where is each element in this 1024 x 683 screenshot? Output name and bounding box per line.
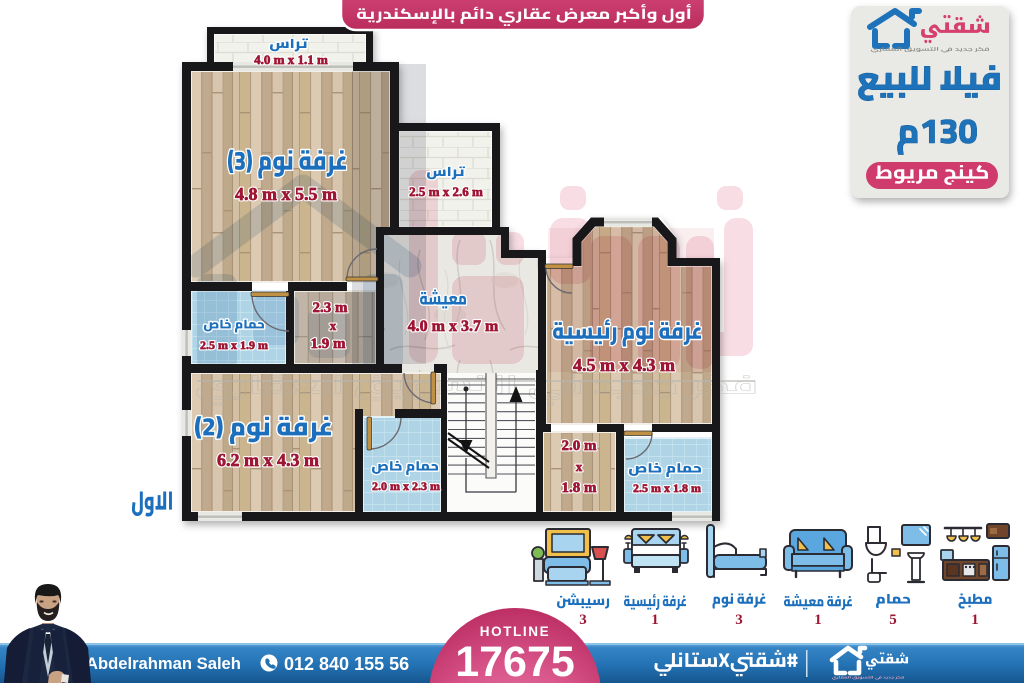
svg-text:1.9 m: 1.9 m: [311, 336, 347, 352]
svg-text:HOTLINE: HOTLINE: [480, 624, 550, 639]
svg-text:1: 1: [971, 612, 979, 628]
svg-text:2.5 m x 1.8 m: 2.5 m x 1.8 m: [633, 481, 701, 495]
svg-text:6.2 m x 4.3 m: 6.2 m x 4.3 m: [217, 450, 319, 470]
svg-text:17675: 17675: [455, 638, 575, 683]
svg-text:2.5 m x 1.9 m: 2.5 m x 1.9 m: [200, 338, 268, 352]
svg-text:3: 3: [579, 612, 587, 628]
svg-text:012 840 155 56: 012 840 155 56: [284, 654, 409, 674]
svg-text:5: 5: [889, 612, 897, 628]
svg-text:2.5 m x 2.6 m: 2.5 m x 2.6 m: [409, 184, 483, 199]
svg-text:Abdelrahman Saleh: Abdelrahman Saleh: [86, 654, 241, 673]
svg-text:4.8 m x 5.5 m: 4.8 m x 5.5 m: [235, 184, 337, 204]
svg-text:x: x: [330, 318, 337, 333]
svg-text:x: x: [576, 459, 583, 474]
svg-text:4.0 m x 1.1 m: 4.0 m x 1.1 m: [254, 52, 328, 67]
svg-text:1: 1: [814, 612, 822, 628]
svg-text:2.3 m: 2.3 m: [313, 300, 349, 316]
svg-text:4.5 m x 4.3 m: 4.5 m x 4.3 m: [573, 355, 675, 375]
svg-text:2.0 m x 2.3 m: 2.0 m x 2.3 m: [372, 479, 440, 493]
svg-text:1.8 m: 1.8 m: [562, 480, 598, 496]
svg-text:2.0 m: 2.0 m: [562, 438, 598, 454]
svg-text:3: 3: [735, 612, 743, 628]
svg-text:4.0 m x 3.7 m: 4.0 m x 3.7 m: [408, 318, 499, 335]
svg-text:1: 1: [651, 612, 659, 628]
